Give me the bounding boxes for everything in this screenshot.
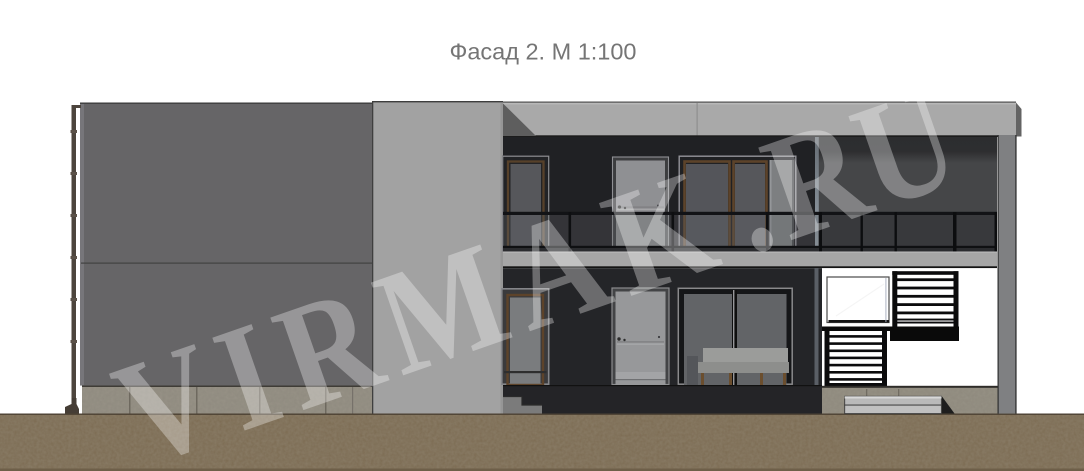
svg-text:Фасад 2. М 1:100: Фасад 2. М 1:100 [449,39,636,65]
